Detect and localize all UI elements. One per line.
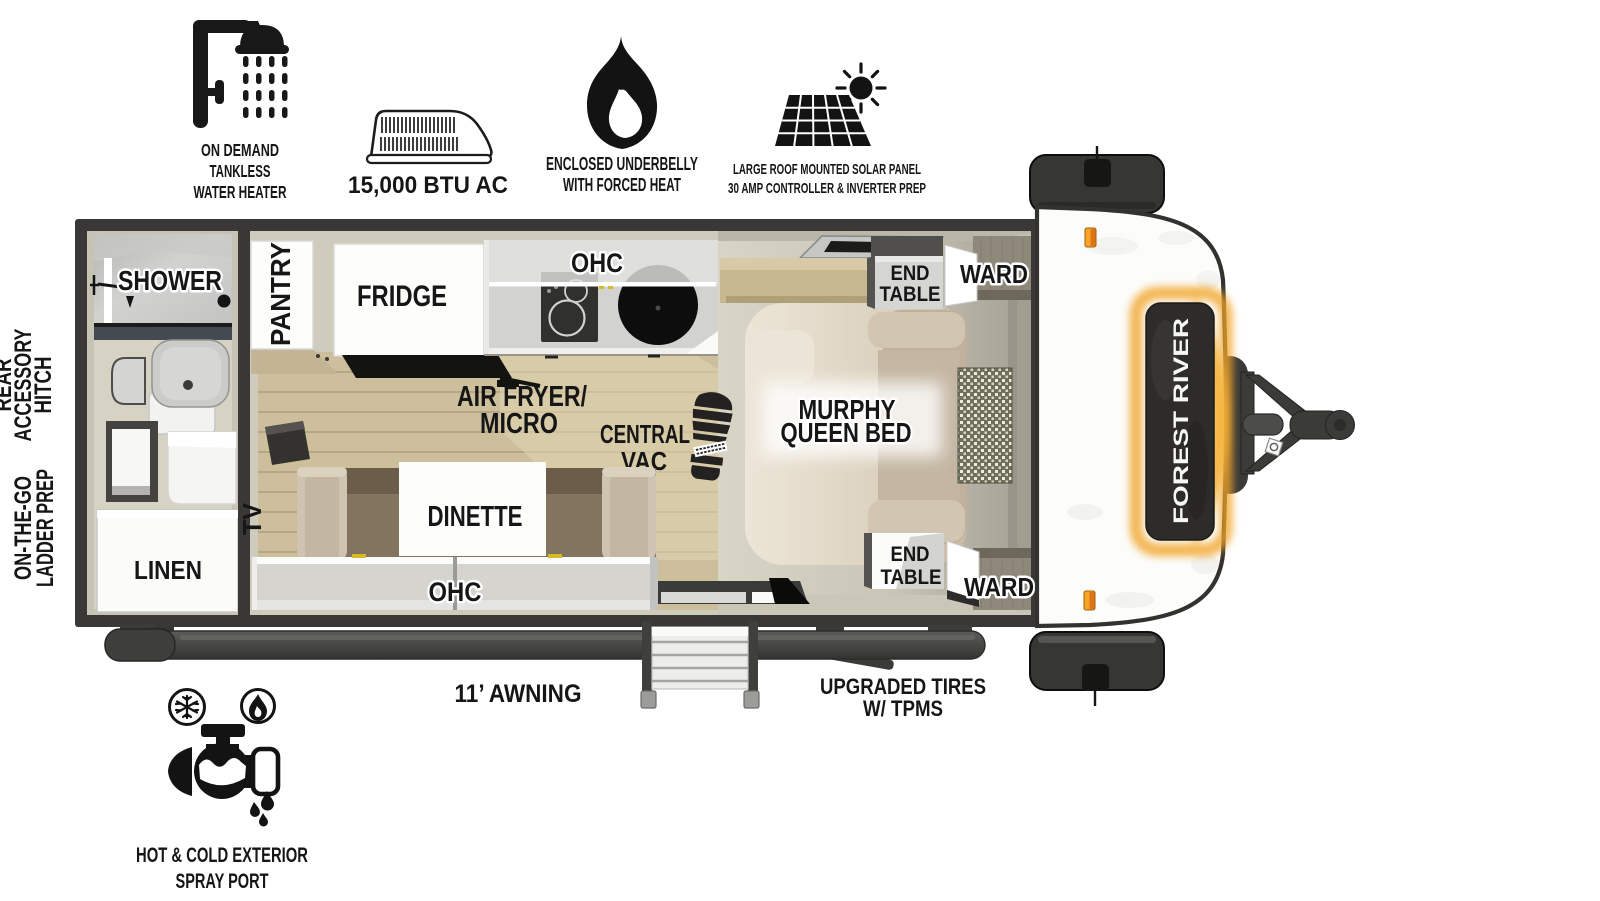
svg-text:11’ AWNING: 11’ AWNING [455, 680, 582, 708]
svg-text:W/ TPMS: W/ TPMS [863, 696, 943, 721]
svg-text:MICRO: MICRO [480, 408, 558, 440]
svg-text:OHC: OHC [571, 248, 623, 278]
svg-text:QUEEN BED: QUEEN BED [781, 417, 912, 448]
svg-text:OHC: OHC [429, 577, 482, 607]
svg-text:TABLE: TABLE [880, 283, 941, 306]
svg-text:FRIDGE: FRIDGE [357, 280, 447, 313]
svg-text:SPRAY PORT: SPRAY PORT [176, 870, 269, 893]
svg-text:PANTRY: PANTRY [265, 242, 296, 346]
svg-text:END: END [891, 543, 930, 566]
svg-text:ON DEMAND: ON DEMAND [201, 140, 279, 160]
svg-text:TANKLESS: TANKLESS [210, 161, 271, 181]
svg-text:TV: TV [237, 502, 267, 535]
svg-text:15,000 BTU AC: 15,000 BTU AC [348, 172, 508, 199]
svg-text:CENTRAL: CENTRAL [600, 419, 690, 449]
svg-text:DINETTE: DINETTE [428, 501, 523, 533]
svg-text:HITCH: HITCH [30, 357, 57, 414]
svg-text:ENCLOSED UNDERBELLY: ENCLOSED UNDERBELLY [546, 154, 698, 174]
svg-text:SHOWER: SHOWER [118, 265, 222, 296]
svg-text:FOREST RIVER: FOREST RIVER [1170, 318, 1193, 524]
svg-text:LINEN: LINEN [134, 555, 202, 585]
svg-text:LARGE ROOF MOUNTED SOLAR PANEL: LARGE ROOF MOUNTED SOLAR PANEL [733, 161, 921, 178]
svg-text:HOT & COLD EXTERIOR: HOT & COLD EXTERIOR [136, 844, 308, 867]
svg-text:WARD: WARD [964, 572, 1034, 602]
svg-text:TABLE: TABLE [881, 566, 942, 589]
svg-text:30 AMP CONTROLLER & INVERTER P: 30 AMP CONTROLLER & INVERTER PREP [728, 180, 926, 197]
svg-text:WATER HEATER: WATER HEATER [194, 182, 287, 202]
svg-text:WITH FORCED HEAT: WITH FORCED HEAT [563, 175, 681, 195]
svg-text:WARD: WARD [960, 259, 1028, 289]
svg-text:END: END [891, 262, 930, 285]
svg-text:LADDER PREP: LADDER PREP [32, 469, 59, 587]
